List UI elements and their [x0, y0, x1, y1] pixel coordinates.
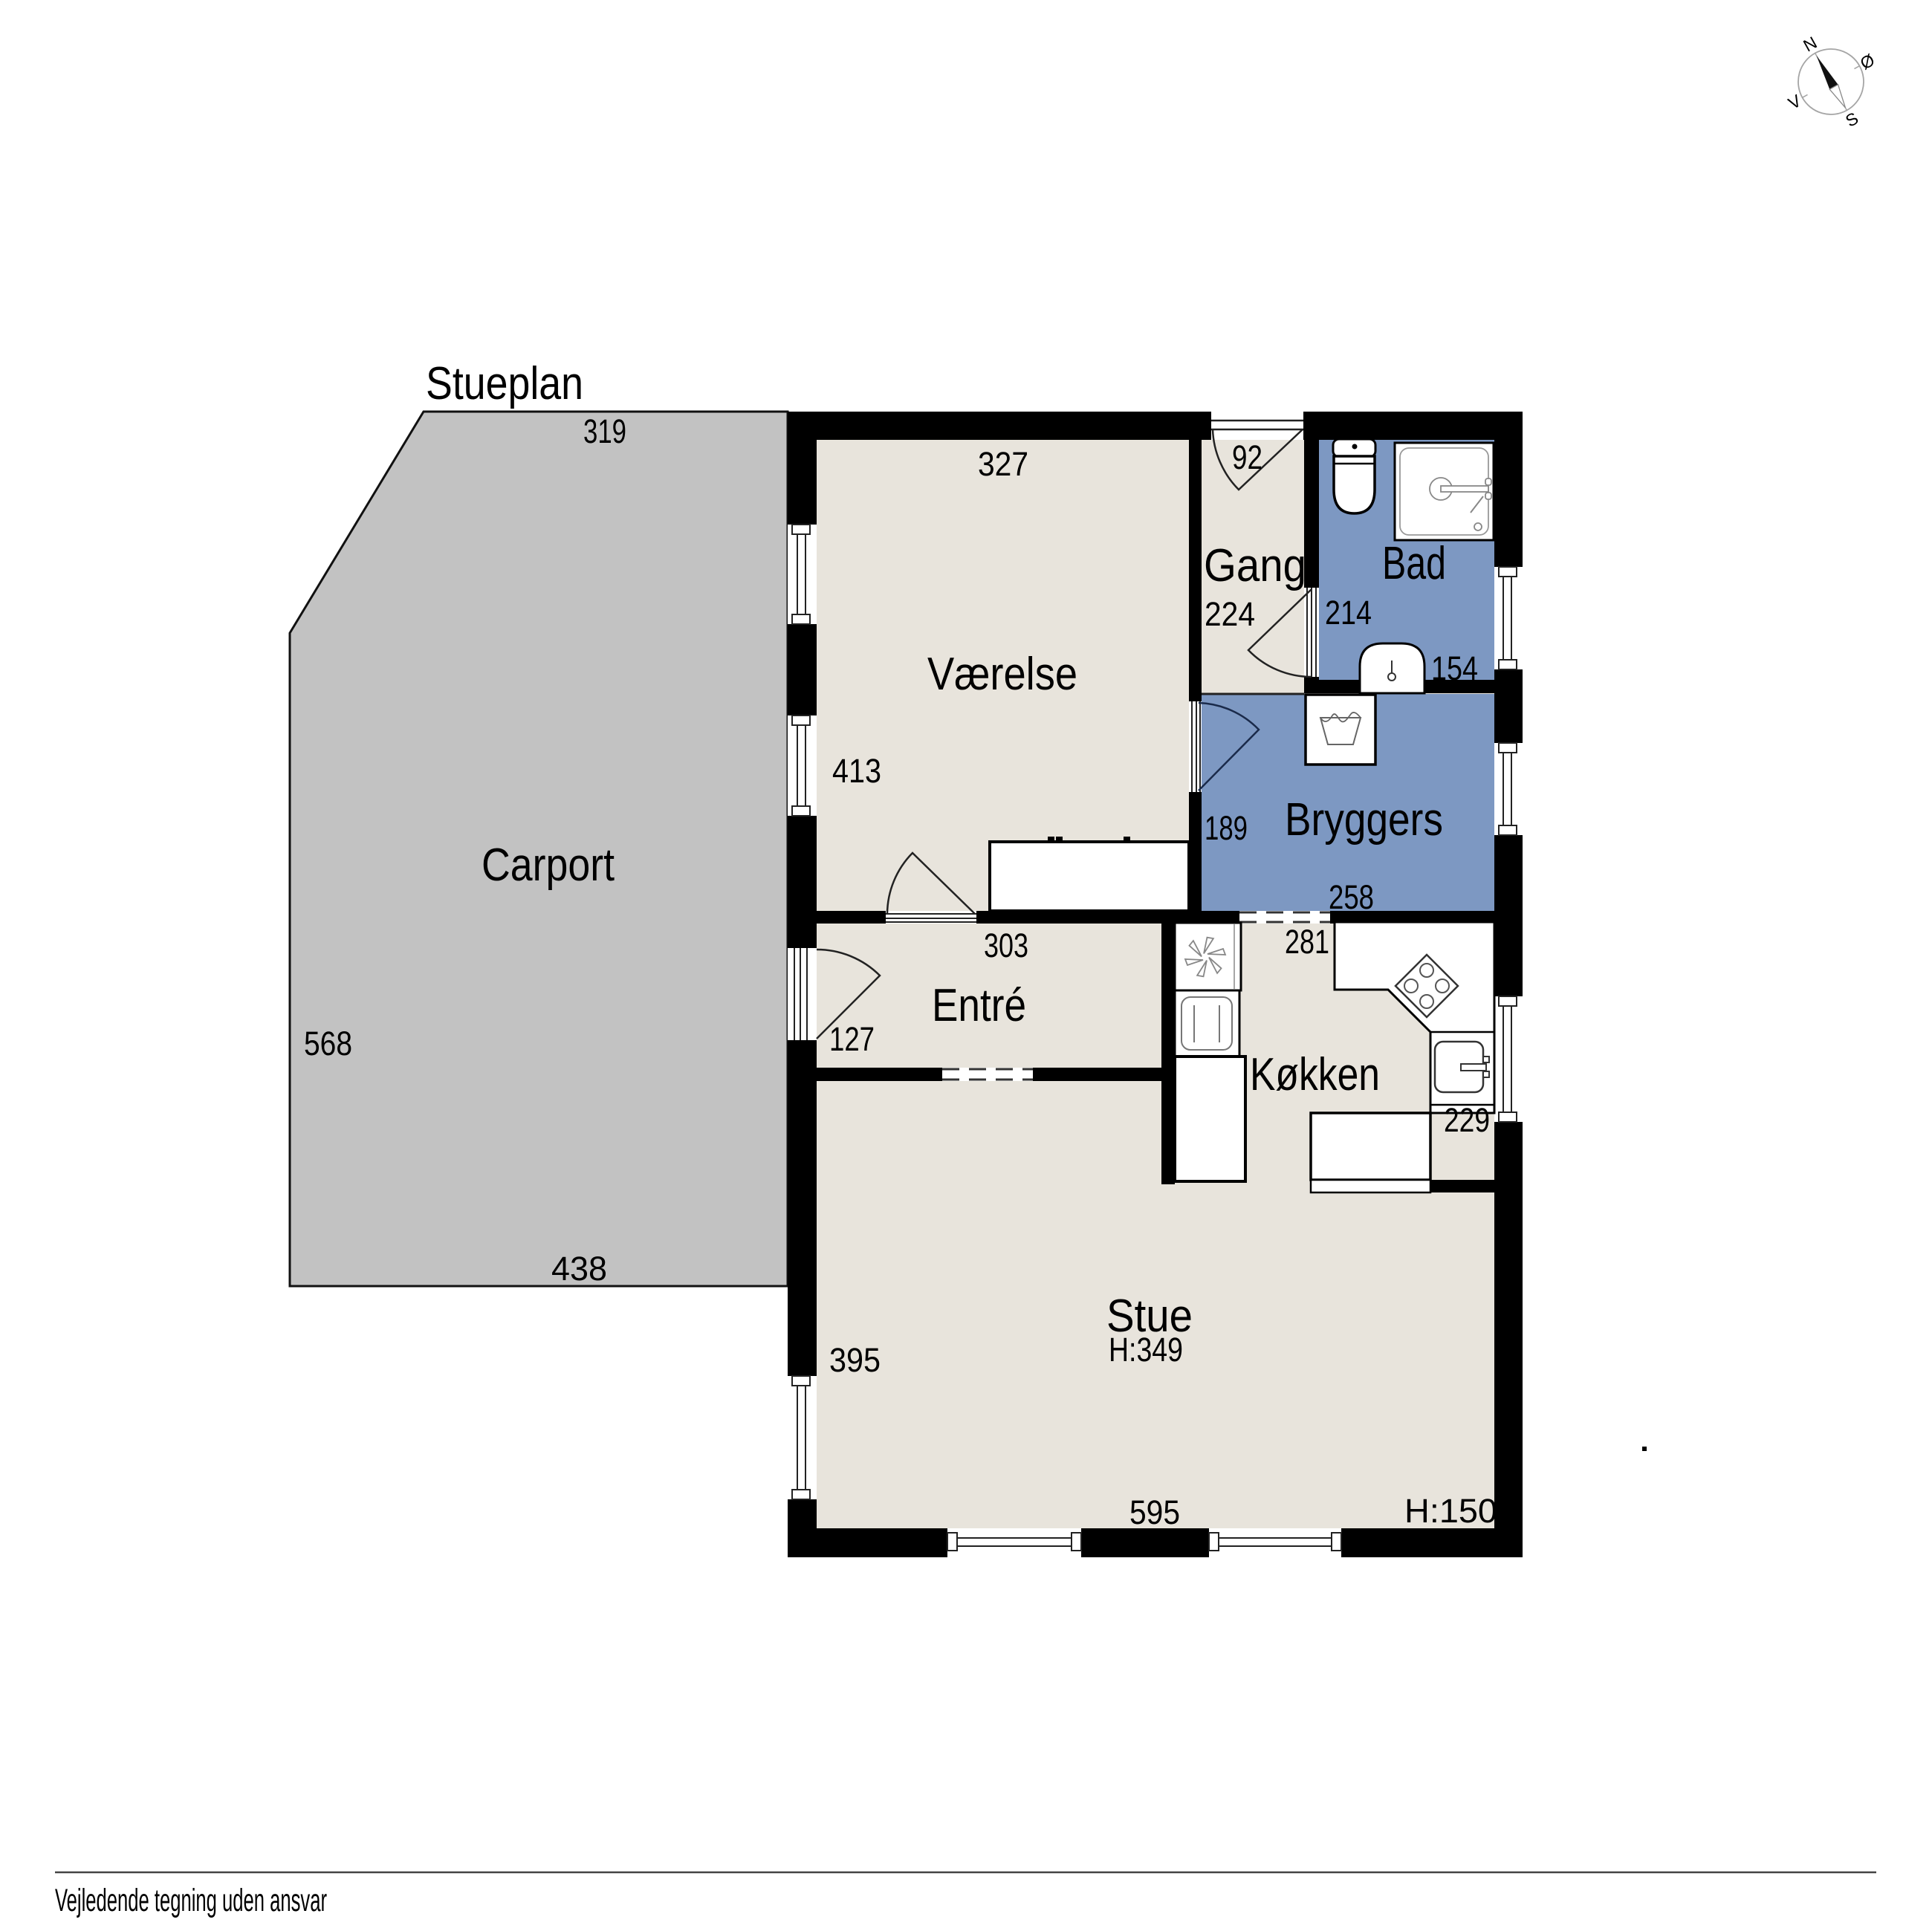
svg-text:154: 154 — [1431, 649, 1478, 687]
svg-text:92: 92 — [1232, 438, 1262, 476]
svg-text:127: 127 — [829, 1020, 875, 1058]
svg-text:438: 438 — [551, 1250, 607, 1288]
svg-text:Bad: Bad — [1382, 538, 1446, 589]
svg-text:H:150: H:150 — [1404, 1492, 1497, 1530]
svg-text:595: 595 — [1129, 1493, 1180, 1531]
svg-text:224: 224 — [1205, 595, 1255, 633]
svg-text:Gang: Gang — [1204, 540, 1306, 591]
svg-text:413: 413 — [832, 752, 881, 790]
svg-text:Værelse: Værelse — [927, 649, 1077, 700]
svg-text:Stueplan: Stueplan — [426, 358, 583, 409]
svg-text:281: 281 — [1285, 923, 1329, 961]
svg-text:Køkken: Køkken — [1250, 1049, 1380, 1100]
svg-text:303: 303 — [984, 926, 1028, 964]
svg-text:395: 395 — [829, 1341, 881, 1379]
svg-text:568: 568 — [304, 1025, 352, 1062]
svg-text:189: 189 — [1205, 809, 1248, 847]
svg-text:Vejledende tegning uden ansvar: Vejledende tegning uden ansvar — [55, 1883, 327, 1918]
svg-text:258: 258 — [1329, 878, 1374, 916]
svg-text:H:349: H:349 — [1109, 1331, 1183, 1369]
svg-text:319: 319 — [583, 412, 626, 450]
svg-text:214: 214 — [1325, 594, 1372, 632]
svg-text:327: 327 — [978, 445, 1028, 483]
svg-text:Entré: Entré — [932, 980, 1026, 1031]
svg-text:Carport: Carport — [482, 840, 615, 891]
svg-text:Bryggers: Bryggers — [1285, 794, 1443, 846]
svg-text:229: 229 — [1444, 1101, 1490, 1139]
